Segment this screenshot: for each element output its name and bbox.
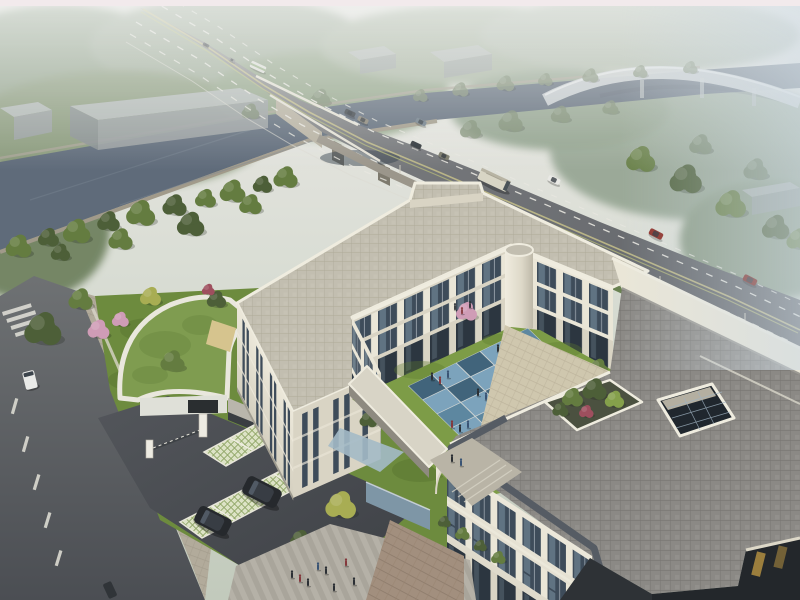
gatehouse-door bbox=[188, 400, 218, 413]
right-mist bbox=[620, 0, 800, 370]
aerial-rendering bbox=[0, 0, 800, 600]
top-border-strip bbox=[0, 0, 800, 6]
gate-pillar bbox=[146, 440, 153, 458]
rendering-canvas bbox=[0, 0, 800, 600]
corner-cylinder-tower bbox=[505, 244, 533, 335]
gate-pillar bbox=[199, 414, 207, 437]
